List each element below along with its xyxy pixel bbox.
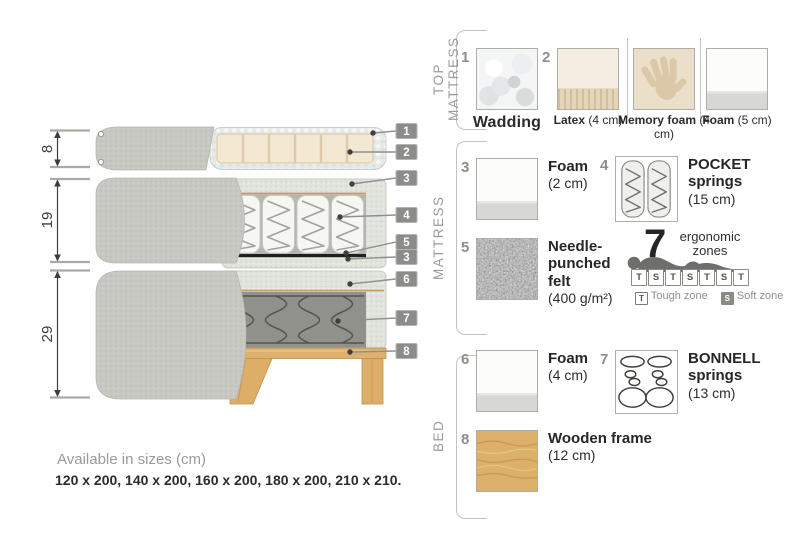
section-label-bed: BED [431, 395, 453, 477]
bonnell-area [226, 292, 366, 348]
item-name: BONNELL springs [688, 350, 772, 385]
section-label-top-mattress: TOP MATTRESS [431, 30, 453, 128]
ergonomic-word1: ergonomic [674, 230, 746, 244]
item-name: POCKET springs [688, 156, 772, 191]
option-divider [627, 38, 628, 118]
wooden-frame [226, 348, 386, 404]
pocket-springs-image [615, 156, 678, 222]
legend-item-foam-2: 3 Foam (2 cm) [476, 158, 538, 220]
tag-5: 5 [403, 237, 410, 249]
tag-1: 1 [403, 126, 410, 138]
zone-1: T [631, 269, 647, 286]
top-mattress-piece [96, 127, 386, 170]
available-sizes-title: Available in sizes (cm) [57, 451, 206, 468]
legend-item-foam-5: Foam (5 cm) [706, 48, 768, 110]
item-number: 7 [600, 351, 608, 368]
legend-item-memory-foam: Memory foam (4 cm) [633, 48, 695, 110]
zone-7: T [733, 269, 749, 286]
item-number: 4 [600, 157, 608, 174]
item-name: Wooden frame [548, 430, 688, 447]
item-name: Latex [554, 113, 585, 127]
item-size: (13 cm) [688, 385, 772, 401]
tough-zone-icon: T [635, 292, 648, 305]
foam-image [476, 158, 538, 220]
legend-item-felt: 5 Needle-punched felt (400 g/m²) [476, 238, 538, 300]
tag-4: 4 [403, 210, 410, 222]
zone-6: S [716, 269, 732, 286]
felt-image [476, 238, 538, 300]
available-sizes-list: 120 x 200, 140 x 200, 160 x 200, 180 x 2… [55, 472, 401, 488]
bonnell-springs-image [615, 350, 678, 414]
bed-piece [96, 271, 386, 404]
tag-3b: 3 [403, 252, 409, 264]
item-name: Wadding [473, 114, 541, 131]
zone-strip: T S T S T S T [631, 269, 750, 286]
option-divider [700, 38, 701, 118]
latex-image [557, 48, 619, 110]
zone-3: T [665, 269, 681, 286]
item-number: 3 [461, 159, 469, 176]
item-size: (15 cm) [688, 191, 772, 207]
callout-tags: 1 2 3 4 5 3 6 7 8 [396, 124, 417, 359]
wood-grain-texture [477, 431, 537, 491]
ergonomic-zones-block: 7 ergonomic zones T S T S T S T T Tough … [600, 228, 760, 308]
bonnell-springs-icon [616, 351, 677, 413]
mattress-construction-infographic: { "diagram": { "dims": [ {"value":"8"}, … [0, 0, 800, 533]
hand-imprint-icon [634, 49, 694, 109]
tag-8: 8 [403, 346, 410, 358]
mattress-piece [96, 178, 386, 268]
item-number: 5 [461, 239, 469, 256]
zone-5: T [699, 269, 715, 286]
tag-7: 7 [403, 313, 409, 325]
zone-4: S [682, 269, 698, 286]
foam-image [706, 48, 768, 110]
felt-texture [477, 239, 537, 299]
soft-zone-label: Soft zone [737, 290, 783, 302]
dimension-arrows: 8 19 29 [39, 131, 90, 398]
legend-item-foam-4: 6 Foam (4 cm) [476, 350, 538, 412]
item-size: (12 cm) [548, 447, 688, 463]
memory-foam-image [633, 48, 695, 110]
wadding-image [476, 48, 538, 110]
tag-2: 2 [403, 147, 409, 159]
item-name: Foam [702, 113, 734, 127]
section-label-mattress: MATTRESS [431, 155, 453, 320]
legend-item-pocket-springs: 4 POCKET springs (15 cm) [615, 156, 678, 222]
pocket-springs-icon [616, 157, 677, 221]
zone-2: S [648, 269, 664, 286]
zone-legend: T Tough zone S Soft zone [635, 290, 783, 305]
wooden-frame-image [476, 430, 538, 492]
item-size: (5 cm) [734, 113, 771, 127]
item-number: 6 [461, 351, 469, 368]
dim-label-8: 8 [39, 145, 56, 153]
legend-item-wadding: 1 Wadding [476, 48, 538, 110]
legend-item-bonnell-springs: 7 BONNELL springs (13 cm) [615, 350, 678, 414]
legend-item-wooden-frame: 8 Wooden frame (12 cm) [476, 430, 538, 492]
dim-label-19: 19 [39, 212, 56, 229]
tag-6: 6 [403, 274, 409, 286]
tough-zone-label: Tough zone [651, 290, 708, 302]
item-number: 2 [542, 49, 550, 66]
item-number: 1 [461, 49, 469, 66]
tag-3: 3 [403, 173, 409, 185]
dim-label-29: 29 [39, 326, 56, 343]
foam-image [476, 350, 538, 412]
legend-item-latex: 2 Latex (4 cm) [557, 48, 619, 110]
item-number: 8 [461, 431, 469, 448]
soft-zone-icon: S [721, 292, 734, 305]
